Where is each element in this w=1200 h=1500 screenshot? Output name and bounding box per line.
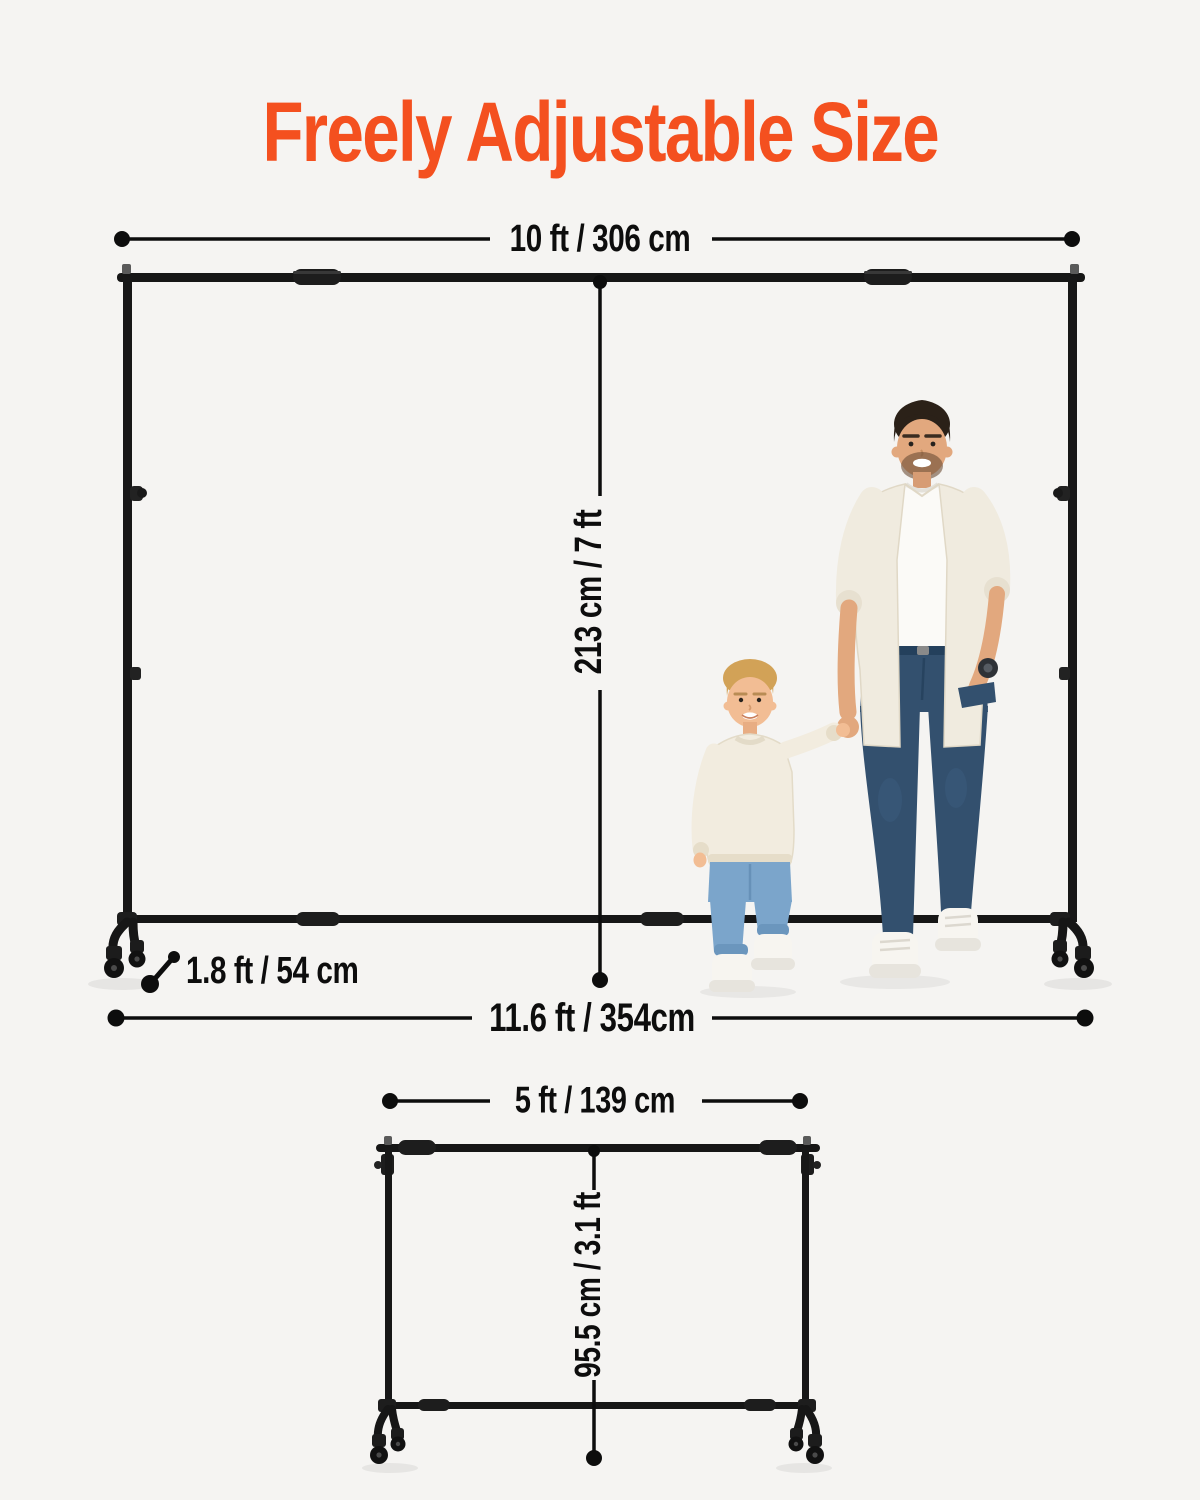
man-figure — [836, 400, 1010, 978]
small-stand-bottom-crossbar — [378, 1399, 816, 1412]
small-stand-left-pole — [385, 1148, 392, 1408]
boy-figure — [693, 659, 850, 992]
small-stand-right-casters — [789, 1409, 825, 1464]
father-son-illustration — [693, 400, 1010, 998]
large-stand-left-pole — [123, 277, 147, 922]
small-stand-right-pole — [802, 1148, 809, 1408]
height-dimension-label: 213 cm / 7 ft — [570, 510, 608, 675]
base-depth-indicator-icon — [141, 951, 180, 993]
large-stand-right-casters — [1052, 922, 1095, 978]
bottom-width-dimension-label: 11.6 ft / 354cm — [489, 998, 695, 1038]
top-width-dimension-label: 10 ft / 306 cm — [510, 220, 691, 258]
large-stand-right-pole — [1053, 277, 1077, 922]
large-stand-bottom-crossbar — [117, 912, 1070, 926]
small-stand-left-casters — [370, 1409, 406, 1464]
infographic-canvas: Freely Adjustable Size — [0, 0, 1200, 1500]
large-stand-left-casters — [104, 922, 146, 978]
base-depth-dimension-label: 1.8 ft / 54 cm — [186, 952, 358, 990]
small-height-dimension-label: 95.5 cm / 3.1 ft — [570, 1192, 606, 1378]
small-width-dimension-label: 5 ft / 139 cm — [515, 1082, 675, 1119]
